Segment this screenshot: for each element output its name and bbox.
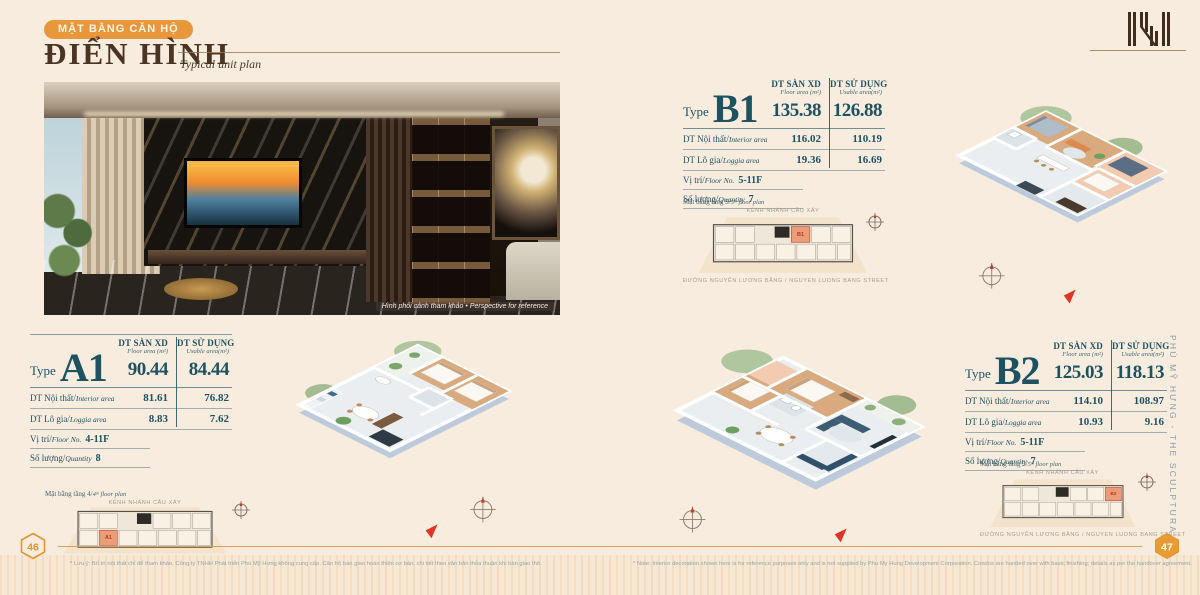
quantity-label-en: Quantity	[65, 454, 91, 463]
photo-caption: Hình phối cảnh tham khảo • Perspective f…	[376, 302, 554, 311]
floorplan-a1	[250, 316, 540, 558]
spec-head-b2: Type B2 DT SÀN XD Floor area (m²) 125.03…	[965, 338, 1167, 391]
loggia-label-en: Loggia area	[70, 415, 107, 424]
interior-value: 81.61	[116, 392, 168, 404]
title-rule	[178, 52, 560, 53]
position-label: Vị trí/	[965, 437, 987, 447]
svg-text:46: 46	[27, 542, 39, 554]
floor-area-value: 125.03	[1051, 362, 1103, 384]
type-label: Type	[965, 366, 991, 390]
photo-artwork	[492, 126, 560, 240]
floor-area-header: DT SÀN XD	[116, 338, 168, 348]
usable-area-subheader: Usable area(m²)	[177, 348, 229, 355]
interior-label-en: Interior area	[729, 135, 768, 144]
position-row: Vị trí/Floor No.5-11F	[683, 171, 803, 190]
position-label: Vị trí/	[683, 175, 705, 185]
floor-area-header: DT SÀN XD	[1051, 341, 1103, 351]
type-label: Type	[683, 104, 709, 128]
column-divider	[176, 337, 177, 427]
spec-panel-b2: Type B2 DT SÀN XD Floor area (m²) 125.03…	[965, 338, 1167, 471]
floor-area-value: 135.38	[769, 100, 821, 122]
keyplan-caption-en: 5ᵗʰ floor plan	[731, 199, 765, 206]
brand-vertical-text: PHÚ MỸ HƯNG - THE SCULPTURA	[1168, 335, 1178, 530]
interior-value: 116.02	[769, 133, 821, 145]
spec-panel-b1: Type B1 DT SÀN XD Floor area (m²) 135.38…	[683, 76, 885, 209]
compass-icon	[680, 507, 706, 533]
keyplan-building-b2: B2	[987, 477, 1139, 531]
interior-usable-value: 76.82	[177, 392, 229, 404]
usable-area-value: 126.88	[830, 100, 882, 122]
footnote-english: * Note: Interior decoration shown here i…	[633, 561, 1192, 567]
photo-console-shelf	[148, 250, 378, 264]
column-divider	[1111, 340, 1112, 430]
floorplan-b1	[898, 70, 1194, 308]
road-label-bottom: ĐƯỜNG NGUYỄN LƯƠNG BẰNG / NGUYEN LUONG B…	[980, 532, 1145, 538]
floor-area-value: 90.44	[116, 359, 168, 381]
position-value: 5-11F	[738, 175, 762, 186]
keyplan-b2: Mặt bằng tầng 5/5ᵗʰ floor plan KÊNH NHÁN…	[980, 460, 1145, 538]
floorplan-b2	[598, 305, 966, 555]
loggia-usable-value: 9.16	[1112, 416, 1164, 428]
position-label-en: Floor No.	[52, 435, 82, 444]
entrance-arrow	[426, 524, 438, 538]
keyplan-a1: Mặt bằng tầng 4/4ᵗʰ floor plan KÊNH NHÁN…	[45, 490, 245, 564]
keyplan-caption-en: 4ᵗʰ floor plan	[93, 491, 127, 498]
interior-row: DT Nội thất/Interior area 116.02 110.19	[683, 129, 885, 150]
road-label-top: KÊNH NHÁNH CẦU XÂY	[45, 500, 245, 506]
photo-coffee-table	[164, 278, 238, 300]
quantity-label: Số lượng/	[30, 453, 65, 463]
interior-label: DT Nội thất/	[30, 393, 76, 403]
usable-area-subheader: Usable area(m²)	[830, 89, 882, 96]
position-label-en: Floor No.	[705, 176, 735, 185]
usable-area-subheader: Usable area(m²)	[1112, 351, 1164, 358]
usable-area-value: 84.44	[177, 359, 229, 381]
photo-cove-light	[84, 112, 504, 116]
loggia-usable-value: 16.69	[830, 154, 882, 166]
usable-area-header: DT SỬ DỤNG	[177, 338, 229, 348]
position-value: 5-11F	[1020, 437, 1044, 448]
loggia-row: DT Lô gia/Loggia area 8.83 7.62	[30, 409, 232, 430]
unit-code: A1	[60, 349, 107, 387]
brochure-page: MẶT BẰNG CĂN HỘ ĐIỂN HÌNH Typical unit p…	[0, 0, 1200, 595]
loggia-label: DT Lô gia/	[30, 414, 70, 424]
svg-text:B2: B2	[1110, 491, 1116, 497]
compass-icon	[979, 263, 1005, 289]
spec-head-a1: Type A1 DT SÀN XD Floor area (m²) 90.44 …	[30, 335, 232, 388]
keyplan-caption: Mặt bằng tầng 5/	[683, 198, 731, 206]
compass-icon	[865, 212, 885, 232]
usable-area-value: 118.13	[1112, 362, 1164, 384]
position-label: Vị trí/	[30, 434, 52, 444]
road-label-top: KÊNH NHÁNH CẦU XÂY	[980, 470, 1145, 476]
unit-code: B1	[713, 90, 758, 128]
position-row: Vị trí/Floor No.5-11F	[965, 433, 1085, 452]
position-row: Vị trí/Floor No.4-11F	[30, 430, 150, 449]
sculptura-logo-icon	[1126, 12, 1172, 51]
keyplan-caption: Mặt bằng tầng 5/	[980, 460, 1028, 468]
compass-icon	[1137, 472, 1157, 492]
floor-area-subheader: Floor area (m²)	[769, 89, 821, 96]
loggia-value: 10.93	[1051, 416, 1103, 428]
entrance-arrow	[1064, 290, 1076, 304]
photo-display-cabinet	[412, 118, 490, 304]
keyplan-building-a1: A1	[60, 507, 230, 557]
footnote-vietnamese: * Lưu ý: Bố trí nội thất chỉ để tham khả…	[70, 561, 542, 567]
interior-row: DT Nội thất/Interior area 81.61 76.82	[30, 388, 232, 409]
loggia-label-en: Loggia area	[1005, 418, 1042, 427]
floor-area-subheader: Floor area (m²)	[1051, 351, 1103, 358]
road-label-top: KÊNH NHÁNH CẦU XÂY	[683, 208, 883, 214]
unit-code: B2	[995, 352, 1040, 390]
keyplan-caption: Mặt bằng tầng 4/	[45, 490, 93, 498]
page-number-left: 46	[19, 532, 47, 560]
position-value: 4-11F	[85, 434, 109, 445]
usable-area-header: DT SỬ DỤNG	[830, 79, 882, 89]
interior-label-en: Interior area	[76, 394, 115, 403]
footer-rule	[58, 546, 1142, 547]
interior-label: DT Nội thất/	[683, 134, 729, 144]
logo-rule	[1090, 50, 1186, 51]
interior-label: DT Nội thất/	[965, 396, 1011, 406]
svg-text:A1: A1	[105, 535, 112, 541]
interior-label-en: Interior area	[1011, 397, 1050, 406]
keyplan-caption-en: 5ᵗʰ floor plan	[1028, 461, 1062, 468]
loggia-value: 19.36	[769, 154, 821, 166]
quantity-row: Số lượng/Quantity8	[30, 449, 150, 468]
loggia-row: DT Lô gia/Loggia area 10.93 9.16	[965, 412, 1167, 433]
usable-area-header: DT SỬ DỤNG	[1112, 341, 1164, 351]
loggia-value: 8.83	[116, 413, 168, 425]
page-subtitle: Typical unit plan	[180, 57, 261, 72]
svg-text:B1: B1	[797, 232, 804, 238]
loggia-row: DT Lô gia/Loggia area 19.36 16.69	[683, 150, 885, 171]
spec-panel-a1: Type A1 DT SÀN XD Floor area (m²) 90.44 …	[30, 334, 232, 468]
page-number-right: 47	[1153, 532, 1181, 560]
interior-usable-value: 110.19	[830, 133, 882, 145]
loggia-label: DT Lô gia/	[965, 417, 1005, 427]
loggia-label: DT Lô gia/	[683, 155, 723, 165]
loggia-label-en: Loggia area	[723, 156, 760, 165]
photo-wood-slats	[366, 98, 412, 302]
compass-icon	[231, 500, 251, 520]
spec-head-b1: Type B1 DT SÀN XD Floor area (m²) 135.38…	[683, 76, 885, 129]
quantity-value: 8	[96, 453, 101, 464]
position-label-en: Floor No.	[987, 438, 1017, 447]
interior-photo: Hình phối cảnh tham khảo • Perspective f…	[44, 82, 560, 315]
type-label: Type	[30, 363, 56, 387]
interior-row: DT Nội thất/Interior area 114.10 108.97	[965, 391, 1167, 412]
compass-icon	[470, 497, 496, 523]
column-divider	[829, 78, 830, 168]
loggia-usable-value: 7.62	[177, 413, 229, 425]
entrance-arrow	[835, 528, 847, 542]
interior-value: 114.10	[1051, 395, 1103, 407]
keyplan-b1: Mặt bằng tầng 5/5ᵗʰ floor plan KÊNH NHÁN…	[683, 198, 883, 284]
svg-text:47: 47	[1161, 542, 1173, 554]
floor-area-subheader: Floor area (m²)	[116, 348, 168, 355]
photo-seating	[506, 242, 560, 300]
photo-plant	[44, 178, 104, 288]
photo-tv-screen	[184, 158, 302, 228]
keyplan-building-b1: B1	[695, 215, 871, 277]
floor-area-header: DT SÀN XD	[769, 79, 821, 89]
road-label-bottom: ĐƯỜNG NGUYỄN LƯƠNG BẰNG / NGUYEN LUONG B…	[683, 278, 883, 284]
interior-usable-value: 108.97	[1112, 395, 1164, 407]
